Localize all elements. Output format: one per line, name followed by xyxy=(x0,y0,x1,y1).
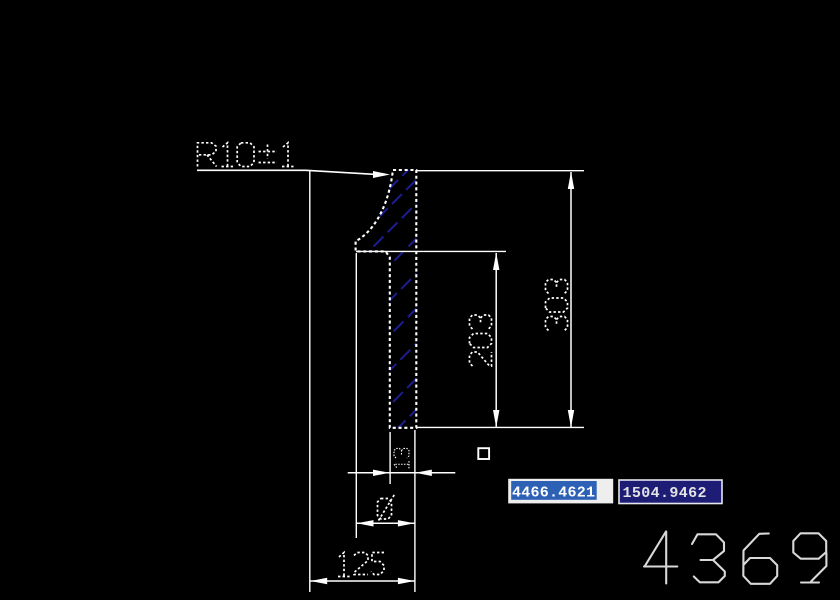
svg-text:4466.4621: 4466.4621 xyxy=(512,485,595,502)
svg-text:1504.9462: 1504.9462 xyxy=(623,485,707,502)
